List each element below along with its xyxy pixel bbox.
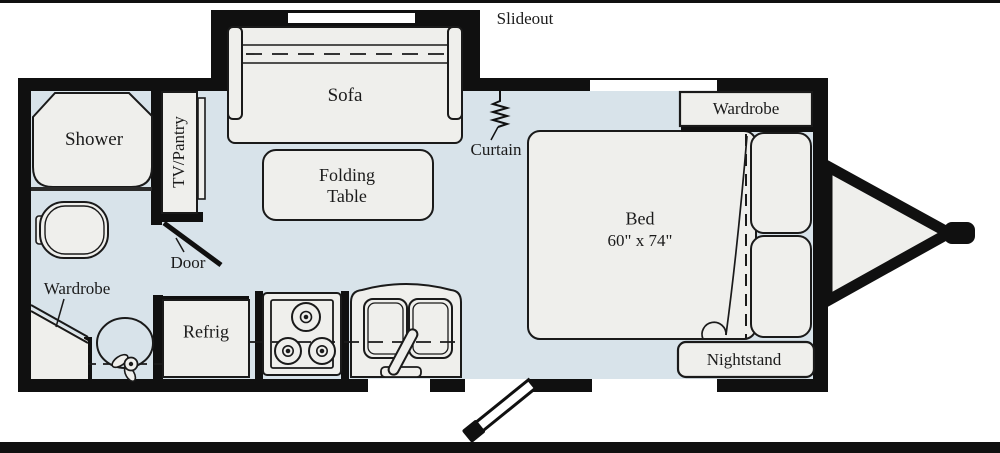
top-border-bar: [0, 0, 1000, 3]
hitch-tongue-frame: [827, 166, 949, 301]
double-kitchen-sink: [351, 284, 461, 377]
sofa-label: Sofa: [328, 85, 363, 107]
hitch-coupler: [944, 222, 975, 244]
slideout-window: [288, 13, 415, 23]
slideout-label: Slideout: [497, 9, 554, 29]
counter-post-right: [341, 291, 349, 379]
bed-size-label: 60" x 74": [608, 231, 673, 251]
bedroom-wardrobe-wall-bar: [681, 127, 817, 132]
bedroom-top-window: [590, 80, 717, 91]
bedroom-wardrobe-label: Wardrobe: [713, 99, 780, 119]
curtain-label: Curtain: [471, 140, 522, 160]
door-label: Door: [171, 253, 206, 273]
floorplan-drawing: [0, 0, 1000, 453]
bottom-border-bar: [0, 442, 1000, 453]
folding-table-label: Folding Table: [319, 165, 375, 207]
kitchen-bottom-window: [368, 379, 430, 392]
tv-pantry-label: TV/Pantry: [169, 116, 189, 188]
tv-pantry-door-panel: [198, 98, 205, 199]
wall-top-left: [18, 78, 212, 91]
bedroom-bottom-window: [592, 379, 717, 392]
wall-left: [18, 78, 31, 392]
floorplan-canvas: Slideout Sofa Shower TV/Pantry Folding T…: [0, 0, 1000, 453]
shower-divider-wall: [31, 187, 152, 191]
bed-label: Bed: [626, 209, 655, 230]
wall-right: [813, 78, 828, 392]
refrig-label: Refrig: [183, 322, 229, 343]
bed-pillow-top: [751, 133, 811, 233]
nightstand-label: Nightstand: [707, 350, 782, 370]
kitchen-left-wall: [153, 295, 163, 379]
counter-post-left: [255, 291, 263, 379]
bath-wardrobe-label: Wardrobe: [44, 279, 111, 299]
toilet: [36, 202, 108, 258]
shower-label: Shower: [65, 129, 123, 151]
bed-pillow-bottom: [751, 236, 811, 337]
